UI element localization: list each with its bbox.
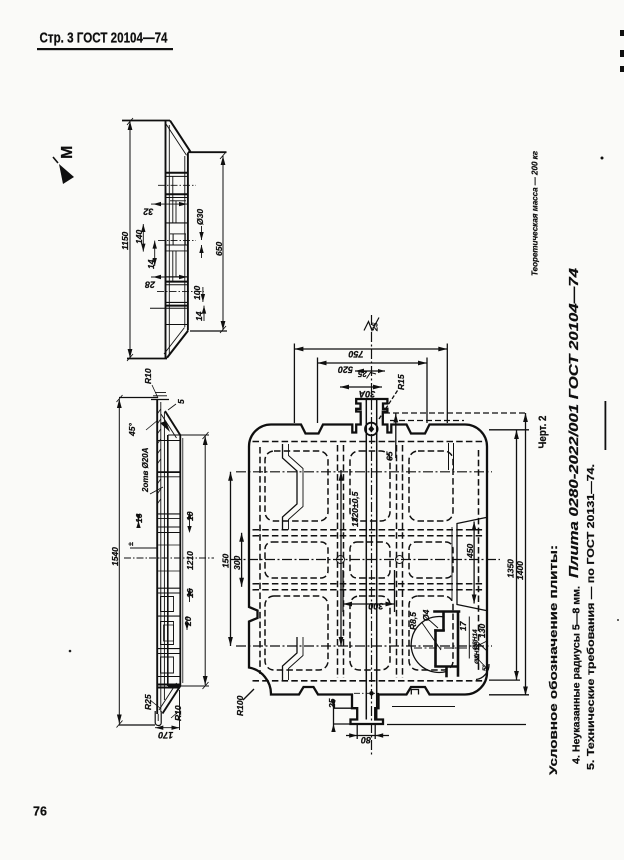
svg-text:80: 80 bbox=[361, 735, 371, 745]
svg-text:1210: 1210 bbox=[185, 551, 195, 570]
svg-text:76: 76 bbox=[33, 805, 47, 819]
svg-text:5: 5 bbox=[176, 399, 186, 404]
svg-text:140: 140 bbox=[134, 230, 144, 244]
svg-text:R8,5: R8,5 bbox=[408, 612, 418, 630]
svg-text:1320±0,5: 1320±0,5 bbox=[350, 491, 360, 527]
svg-text:28: 28 bbox=[145, 280, 156, 290]
svg-text:14: 14 bbox=[194, 311, 204, 321]
svg-text:17: 17 bbox=[458, 620, 468, 631]
svg-text:30А: 30А bbox=[359, 389, 376, 399]
svg-text:520: 520 bbox=[338, 365, 353, 375]
svg-text:25: 25 bbox=[371, 322, 380, 332]
svg-text:Условное обозначение плиты:: Условное обозначение плиты: bbox=[548, 545, 560, 775]
svg-text:14: 14 bbox=[146, 259, 156, 269]
svg-text:Черт. 2: Черт. 2 bbox=[537, 416, 549, 449]
svg-text:750: 750 bbox=[348, 349, 363, 359]
svg-text:450: 450 bbox=[465, 544, 475, 559]
svg-text:170: 170 bbox=[158, 730, 173, 740]
svg-text:300: 300 bbox=[232, 556, 242, 570]
svg-text:5. Технические требования — по: 5. Технические требования — по ГОСТ 2013… bbox=[585, 464, 597, 770]
svg-text:Ø30: Ø30 bbox=[195, 209, 205, 225]
svg-text:1350: 1350 bbox=[506, 559, 516, 578]
svg-text:Теоретическая масса — 200 кг: Теоретическая масса — 200 кг bbox=[530, 151, 540, 276]
svg-text:1150: 1150 bbox=[120, 231, 130, 250]
svg-text:2отв Ø20А: 2отв Ø20А bbox=[141, 447, 150, 493]
svg-text:16: 16 bbox=[185, 588, 195, 598]
svg-text:65: 65 bbox=[385, 451, 395, 461]
svg-text:1400: 1400 bbox=[515, 561, 525, 580]
svg-text:650: 650 bbox=[214, 242, 224, 256]
svg-text:М: М bbox=[59, 146, 76, 159]
svg-text:R10: R10 bbox=[143, 368, 153, 384]
svg-text:R10: R10 bbox=[173, 705, 183, 721]
svg-text:Ø8Н12: Ø8Н12 bbox=[474, 643, 481, 664]
svg-text:25: 25 bbox=[358, 369, 368, 378]
svg-text:16: 16 bbox=[134, 513, 144, 523]
svg-text:150: 150 bbox=[221, 554, 231, 568]
svg-text:300: 300 bbox=[368, 601, 383, 611]
svg-text:R25: R25 bbox=[143, 694, 153, 710]
svg-text:100: 100 bbox=[192, 286, 202, 300]
svg-text:10: 10 bbox=[185, 511, 195, 521]
svg-text:32: 32 bbox=[143, 206, 153, 216]
svg-text:R100: R100 bbox=[235, 695, 245, 716]
svg-text:±: ± bbox=[128, 542, 135, 546]
svg-text:Плита 0280-2022/001 ГОСТ 20104: Плита 0280-2022/001 ГОСТ 20104—74 bbox=[566, 267, 581, 578]
svg-text:4. Неуказанные радиусы 5—8 мм.: 4. Неуказанные радиусы 5—8 мм. bbox=[572, 586, 583, 764]
svg-text:1540: 1540 bbox=[110, 547, 120, 566]
svg-text:5°: 5° bbox=[481, 664, 489, 671]
svg-text:25: 25 bbox=[327, 698, 337, 709]
svg-text:Стр. 3 ГОСТ 20104—74: Стр. 3 ГОСТ 20104—74 bbox=[40, 30, 168, 47]
svg-text:20: 20 bbox=[183, 616, 193, 627]
svg-text:Ø4: Ø4 bbox=[421, 609, 431, 621]
svg-text:45°: 45° bbox=[127, 423, 137, 437]
svg-text:R15: R15 bbox=[396, 374, 406, 390]
